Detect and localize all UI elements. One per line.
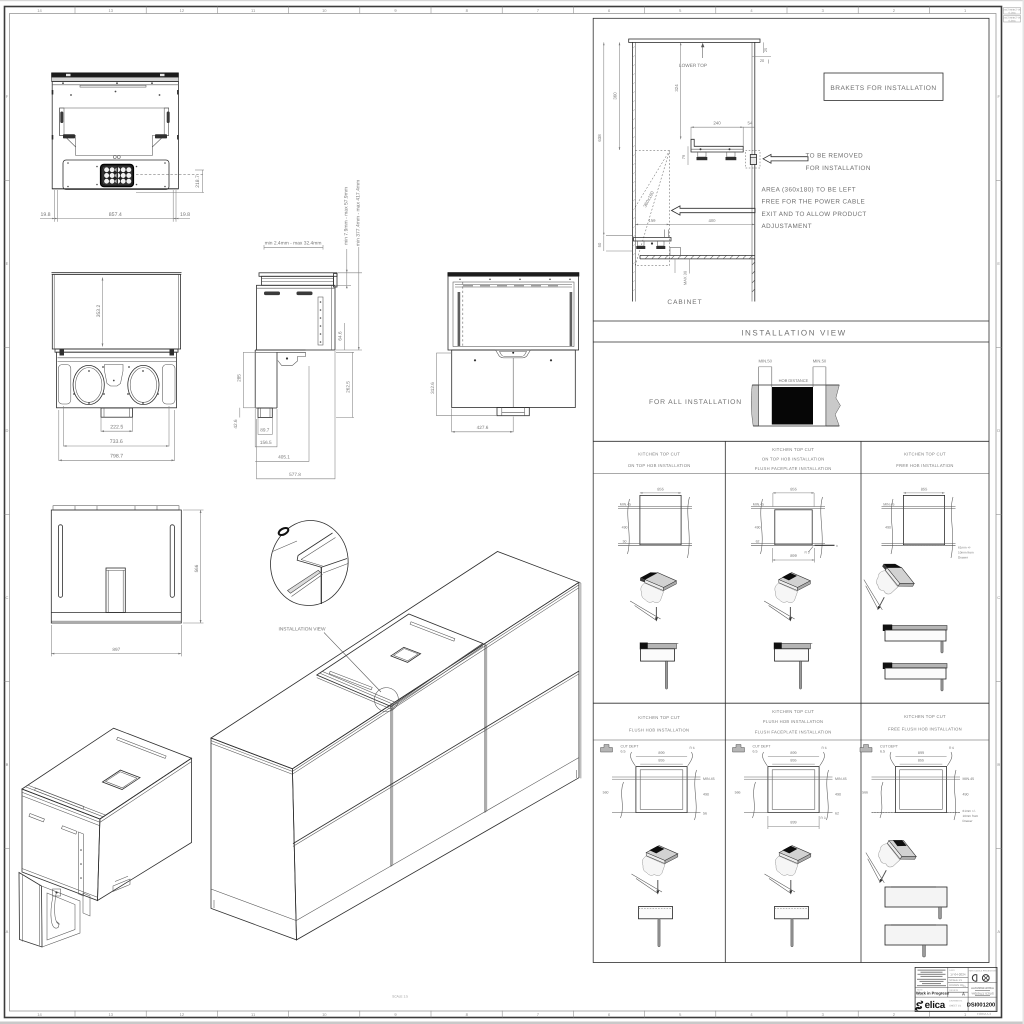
svg-text:899: 899 — [658, 751, 664, 755]
svg-text:MIN.50: MIN.50 — [813, 359, 827, 364]
svg-text:elica: elica — [925, 1000, 946, 1011]
svg-text:285: 285 — [236, 374, 241, 382]
svg-text:10mm from: 10mm from — [963, 814, 979, 818]
svg-text:CUT DEPT: CUT DEPT — [753, 744, 772, 748]
svg-text:LOWER TOP: LOWER TOP — [679, 63, 707, 68]
svg-text:KITCHEN TOP CUT: KITCHEN TOP CUT — [904, 714, 946, 719]
svg-text:R 3: R 3 — [821, 816, 826, 820]
svg-text:B: B — [997, 762, 1000, 767]
svg-text:MAX 30: MAX 30 — [683, 270, 688, 285]
svg-text:733.6: 733.6 — [110, 439, 123, 445]
svg-text:400: 400 — [709, 218, 717, 223]
svg-text:50: 50 — [623, 540, 627, 544]
svg-text:FREE HOB INSTALLATION: FREE HOB INSTALLATION — [896, 463, 953, 468]
svg-text:AA31608412035A: AA31608412035A — [971, 986, 994, 990]
svg-text:353.2: 353.2 — [96, 305, 102, 318]
svg-text:10: 10 — [322, 1012, 327, 1017]
svg-text:SCALE 1:5: SCALE 1:5 — [392, 995, 408, 999]
svg-text:855: 855 — [918, 759, 924, 763]
svg-text:R 6: R 6 — [949, 746, 954, 750]
svg-text:NOTE: NOTE — [917, 989, 923, 992]
svg-text:222.5: 222.5 — [110, 424, 123, 430]
svg-text:AREA (360x180) TO BE LEFT: AREA (360x180) TO BE LEFT — [762, 187, 856, 194]
svg-text:25: 25 — [763, 48, 768, 52]
svg-text:D: D — [6, 428, 9, 433]
svg-text:SCALE 1:5: SCALE 1:5 — [949, 979, 962, 982]
svg-text:FLUSH HOB INSTALLATION: FLUSH HOB INSTALLATION — [763, 719, 823, 724]
svg-text:62: 62 — [835, 812, 839, 816]
svg-text:0.3mq: 0.3mq — [1009, 19, 1016, 22]
svg-text:INSTALLATION VIEW: INSTALLATION VIEW — [741, 328, 847, 337]
svg-text:ON TOP HOB INSTALLATION: ON TOP HOB INSTALLATION — [762, 457, 825, 462]
svg-text:855: 855 — [790, 486, 797, 491]
svg-text:54: 54 — [748, 120, 753, 125]
svg-text:Drawer: Drawer — [958, 556, 968, 560]
svg-text:560: 560 — [603, 791, 609, 795]
svg-text:FLUSH FACEPLATE INSTALLATION: FLUSH FACEPLATE INSTALLATION — [755, 730, 832, 735]
svg-text:14: 14 — [37, 1012, 42, 1017]
svg-text:MIN.45: MIN.45 — [963, 777, 975, 781]
svg-text:DSI001200: DSI001200 — [967, 1002, 995, 1008]
svg-text:61mm +/-: 61mm +/- — [963, 809, 976, 813]
svg-text:13: 13 — [108, 1012, 113, 1017]
svg-text:FORM A.3: FORM A.3 — [977, 1012, 991, 1016]
svg-text:324: 324 — [674, 84, 679, 92]
svg-text:855: 855 — [790, 759, 796, 763]
svg-text:566: 566 — [862, 791, 868, 795]
svg-text:62: 62 — [756, 540, 760, 544]
svg-text:6.5: 6.5 — [880, 749, 885, 753]
svg-text:BRAKETS FOR INSTALLATION: BRAKETS FOR INSTALLATION — [830, 85, 936, 92]
svg-text:19.8: 19.8 — [180, 212, 190, 218]
svg-text:312.6: 312.6 — [430, 382, 435, 394]
svg-text:E: E — [997, 261, 1000, 266]
svg-text:897: 897 — [112, 647, 120, 652]
svg-text:855: 855 — [657, 486, 664, 491]
svg-text:405.1: 405.1 — [278, 455, 290, 460]
svg-text:FOR ALL INSTALLATION: FOR ALL INSTALLATION — [649, 399, 742, 406]
svg-text:FREE FOR THE POWER CABLE: FREE FOR THE POWER CABLE — [762, 199, 866, 206]
svg-text:899: 899 — [790, 751, 796, 755]
svg-text:427.6: 427.6 — [477, 425, 489, 430]
svg-text:6.5: 6.5 — [621, 749, 626, 753]
svg-text:17-04-2024: 17-04-2024 — [950, 972, 966, 976]
svg-text:KITCHEN TOP CUT: KITCHEN TOP CUT — [638, 452, 680, 457]
svg-text:B: B — [6, 762, 9, 767]
svg-text:899: 899 — [918, 751, 924, 755]
svg-text:KITCHEN TOP CUT: KITCHEN TOP CUT — [772, 447, 814, 452]
svg-text:490: 490 — [885, 526, 891, 530]
svg-text:218.7: 218.7 — [195, 175, 201, 188]
svg-text:490: 490 — [622, 526, 628, 530]
svg-text:D: D — [997, 428, 1000, 433]
svg-text:FREE FLUSH HOB INSTALLATION: FREE FLUSH HOB INSTALLATION — [888, 727, 962, 732]
svg-text:42.6: 42.6 — [233, 419, 238, 429]
svg-text:CABINET: CABINET — [667, 299, 702, 306]
svg-text:12: 12 — [180, 8, 185, 13]
svg-text:899: 899 — [790, 821, 796, 825]
svg-text:0.1mq: 0.1mq — [1009, 11, 1016, 14]
svg-text:Y60201Z1TCSUS: Y60201Z1TCSUS — [971, 991, 994, 995]
svg-text:855: 855 — [921, 486, 928, 491]
svg-text:56: 56 — [703, 812, 707, 816]
svg-text:KITCHEN TOP CUT: KITCHEN TOP CUT — [904, 452, 946, 457]
svg-text:490: 490 — [703, 793, 709, 797]
svg-text:855: 855 — [658, 759, 664, 763]
svg-text:FIRST ANGLE PROJECTION: FIRST ANGLE PROJECTION — [969, 969, 997, 972]
svg-text:10: 10 — [322, 8, 327, 13]
svg-text:798.7: 798.7 — [110, 454, 123, 460]
svg-text:INSTALLATION VIEW: INSTALLATION VIEW — [279, 627, 326, 633]
svg-text:min 7.9mm - max 57.9mm: min 7.9mm - max 57.9mm — [343, 187, 349, 245]
svg-text:14: 14 — [37, 8, 42, 13]
svg-text:MIN.45: MIN.45 — [703, 777, 715, 781]
svg-text:79: 79 — [681, 154, 686, 159]
svg-text:MIN.45: MIN.45 — [753, 503, 764, 507]
svg-text:EXIT AND TO ALLOW PRODUCT: EXIT AND TO ALLOW PRODUCT — [762, 211, 867, 218]
svg-text:A: A — [962, 991, 965, 996]
svg-text:12: 12 — [180, 1012, 185, 1017]
svg-text:10mm from: 10mm from — [958, 551, 974, 555]
svg-text:MIN.50: MIN.50 — [758, 359, 772, 364]
svg-text:E: E — [6, 261, 9, 266]
svg-text:566: 566 — [735, 791, 741, 795]
svg-text:638: 638 — [597, 134, 602, 142]
svg-text:156.5: 156.5 — [260, 440, 272, 445]
svg-text:R 6: R 6 — [690, 746, 695, 750]
svg-text:899: 899 — [790, 553, 797, 558]
svg-text:KITCHEN TOP CUT: KITCHEN TOP CUT — [772, 709, 814, 714]
svg-text:Drawer: Drawer — [963, 819, 973, 823]
svg-text:64.6: 64.6 — [338, 331, 343, 341]
svg-text:min 2.4mm - max 32.4mm: min 2.4mm - max 32.4mm — [265, 240, 322, 246]
svg-text:89.7: 89.7 — [260, 428, 270, 433]
svg-text:DRAWING N.: DRAWING N. — [949, 1000, 963, 1003]
svg-text:6.5: 6.5 — [753, 749, 758, 753]
svg-text:R 6: R 6 — [822, 746, 827, 750]
svg-text:STATUS: STATUS — [917, 994, 925, 997]
svg-text:min 377.4mm - max 417.4mm: min 377.4mm - max 417.4mm — [356, 180, 362, 246]
svg-text:TO BE REMOVED: TO BE REMOVED — [806, 153, 864, 160]
svg-text:MIN.45: MIN.45 — [835, 777, 847, 781]
svg-text:262.5: 262.5 — [346, 381, 351, 393]
svg-text:ADJUSTAMENT: ADJUSTAMENT — [762, 223, 812, 230]
svg-text:FLUSH HOB INSTALLATION: FLUSH HOB INSTALLATION — [629, 728, 689, 733]
svg-text:CUT DEPT: CUT DEPT — [880, 744, 899, 748]
svg-text:857.4: 857.4 — [109, 212, 122, 218]
svg-text:61mm +/-: 61mm +/- — [958, 546, 971, 550]
svg-text:240: 240 — [713, 120, 721, 125]
svg-text:13: 13 — [108, 8, 113, 13]
svg-text:C: C — [6, 595, 9, 600]
svg-text:MIN.45: MIN.45 — [620, 503, 631, 507]
svg-text:HOB DISTANCE: HOB DISTANCE — [779, 378, 809, 383]
svg-text:50: 50 — [597, 242, 602, 247]
svg-text:577.8: 577.8 — [289, 472, 301, 477]
svg-text:490: 490 — [835, 793, 841, 797]
svg-text:490: 490 — [755, 526, 761, 530]
svg-text:MIN.45: MIN.45 — [883, 503, 894, 507]
svg-text:19.8: 19.8 — [40, 212, 50, 218]
svg-text:360: 360 — [613, 92, 618, 100]
svg-text:SHEET 1/1: SHEET 1/1 — [949, 1005, 962, 1008]
svg-text:KITCHEN TOP CUT: KITCHEN TOP CUT — [638, 715, 680, 720]
svg-text:C: C — [997, 595, 1000, 600]
svg-text:159: 159 — [649, 218, 657, 223]
svg-text:A: A — [6, 929, 9, 934]
svg-text:CUT DEPT: CUT DEPT — [621, 744, 640, 748]
svg-text:A: A — [997, 929, 1000, 934]
svg-text:490: 490 — [963, 793, 969, 797]
svg-text:FOR INSTALLATION: FOR INSTALLATION — [806, 165, 871, 172]
svg-text:REVIEW: REVIEW — [949, 989, 959, 992]
svg-text:566: 566 — [194, 564, 199, 572]
svg-text:ON TOP HOB INSTALLATION: ON TOP HOB INSTALLATION — [628, 463, 691, 468]
svg-text:FLUSH FACEPLATE INSTALLATION: FLUSH FACEPLATE INSTALLATION — [755, 466, 832, 471]
